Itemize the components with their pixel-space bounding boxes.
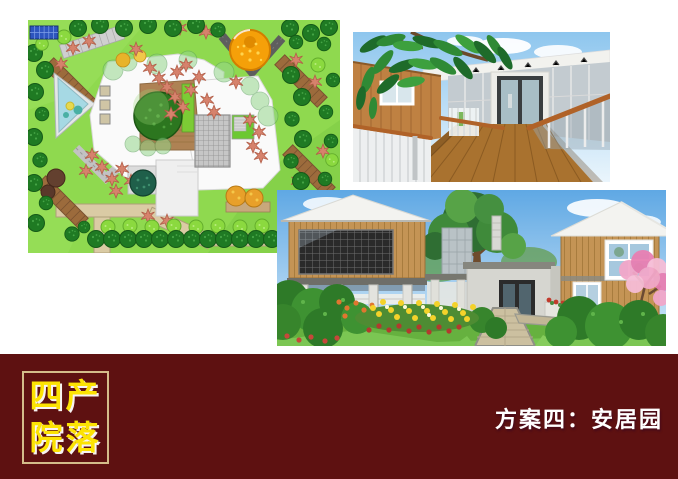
terrace-render-graphic [353,32,610,182]
terrace-render-image [353,32,610,182]
courtyard-badge: 四产 院落 [22,371,109,464]
plan-title: 方案四：安居园 [495,402,663,434]
building-render-image [277,190,666,346]
footer-banner: 四产 院落 方案四：安居园 [0,354,678,479]
badge-line-1: 四产 [30,376,102,418]
building-render-graphic [277,190,666,346]
badge-line-2: 院落 [30,418,102,460]
slide: 四产 院落 方案四：安居园 [0,0,678,479]
